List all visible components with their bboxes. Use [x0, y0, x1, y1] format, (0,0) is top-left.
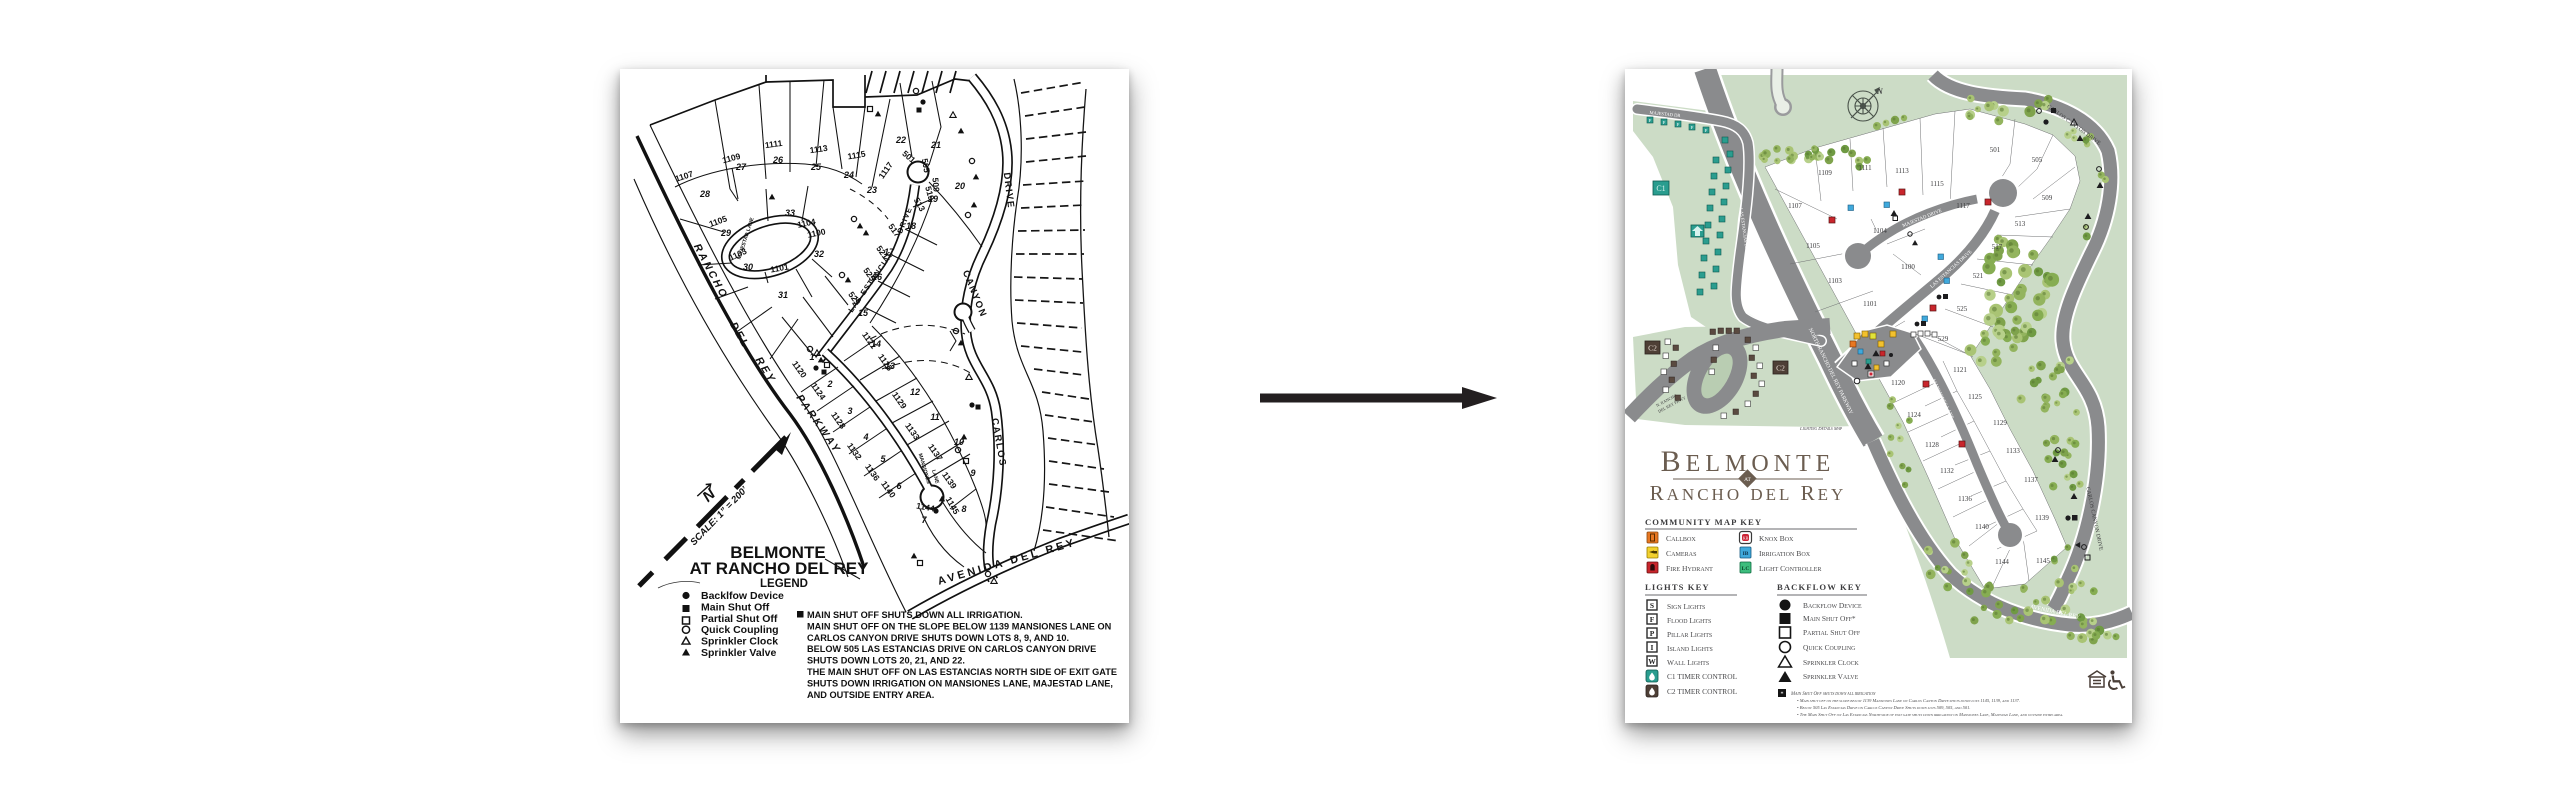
svg-text:BELOW 505 LAS ESTANCIAS DRIVE: BELOW 505 LAS ESTANCIAS DRIVE ON CARLOS … — [807, 644, 1096, 654]
svg-text:QUICK COUPLING: QUICK COUPLING — [1803, 643, 1856, 652]
svg-text:BACKFLOW KEY: BACKFLOW KEY — [1777, 582, 1862, 592]
svg-text:C1: C1 — [1656, 184, 1665, 193]
svg-text:CARLOS CANYON DRIVE SHUTS DOWN: CARLOS CANYON DRIVE SHUTS DOWN LOTS 8, 9… — [807, 633, 1069, 643]
svg-text:1133: 1133 — [2006, 447, 2020, 455]
svg-text:IRRIGATION BOX: IRRIGATION BOX — [1759, 549, 1811, 558]
svg-text:1117: 1117 — [1956, 202, 1970, 210]
svg-text:C2 TIMER CONTROL: C2 TIMER CONTROL — [1667, 687, 1738, 696]
svg-text:1113: 1113 — [1895, 167, 1909, 175]
svg-text:AT RANCHO DEL REY: AT RANCHO DEL REY — [690, 559, 869, 578]
svg-text:1144: 1144 — [1995, 558, 2009, 566]
svg-text:COMMUNITY MAP KEY: COMMUNITY MAP KEY — [1645, 517, 1762, 527]
svg-text:BACKFLOW DEVICE: BACKFLOW DEVICE — [1803, 601, 1862, 610]
svg-text:LEGEND: LEGEND — [760, 578, 808, 590]
svg-text:P: P — [1650, 629, 1655, 638]
svg-text:1139: 1139 — [2035, 514, 2049, 522]
svg-text:SIGN LIGHTS: SIGN LIGHTS — [1667, 602, 1705, 611]
svg-text:SPRINKLER VALVE: SPRINKLER VALVE — [1803, 672, 1859, 681]
svg-text:17: 17 — [884, 247, 895, 257]
svg-text:RANCHO DEL REY: RANCHO DEL REY — [1650, 481, 1847, 505]
svg-text:1115: 1115 — [847, 149, 867, 162]
svg-text:1125: 1125 — [1968, 393, 1982, 401]
svg-text:1107: 1107 — [1788, 202, 1802, 210]
svg-text:C1 TIMER CONTROL: C1 TIMER CONTROL — [1667, 672, 1738, 681]
svg-text:KNOX BOX: KNOX BOX — [1759, 534, 1794, 543]
svg-text:33: 33 — [785, 208, 795, 218]
svg-text:18: 18 — [906, 221, 916, 231]
svg-text:SCALE: 1” = 200’: SCALE: 1” = 200’ — [688, 484, 750, 548]
svg-text:MAIN SHUT OFF SHUTS DOWN ALL I: MAIN SHUT OFF SHUTS DOWN ALL IRRIGATION. — [807, 610, 1023, 620]
svg-text:1124: 1124 — [809, 381, 828, 402]
svg-text:20: 20 — [954, 181, 965, 191]
svg-text:22: 22 — [895, 135, 906, 145]
svg-text:LIGHTS KEY: LIGHTS KEY — [1645, 582, 1710, 592]
svg-text:REY: REY — [753, 355, 779, 386]
svg-text:25: 25 — [810, 162, 822, 172]
svg-text:505: 505 — [2032, 156, 2043, 164]
svg-text:513: 513 — [2015, 220, 2026, 228]
svg-text:30: 30 — [743, 262, 753, 272]
svg-text:1128: 1128 — [1925, 441, 1939, 449]
svg-text:1105: 1105 — [708, 213, 729, 229]
svg-text:SPRINKLER CLOCK: SPRINKLER CLOCK — [1803, 658, 1860, 667]
svg-text:1132: 1132 — [845, 441, 864, 462]
svg-text:DEL: DEL — [727, 320, 752, 351]
svg-text:SHUTS DOWN IRRIGATION ON MANS: SHUTS DOWN IRRIGATION ON MANSIONES LANE,… — [807, 678, 1113, 688]
svg-text:CARLOS: CARLOS — [989, 417, 1008, 467]
svg-text:1117: 1117 — [876, 160, 895, 181]
svg-text:29: 29 — [720, 228, 731, 238]
svg-text:1120: 1120 — [790, 359, 809, 380]
svg-text:Main Shut Off: Main Shut Off — [701, 601, 770, 613]
svg-text:1133: 1133 — [903, 421, 922, 442]
svg-text:1145: 1145 — [944, 495, 962, 516]
svg-text:F: F — [1650, 615, 1655, 624]
svg-text:1145: 1145 — [2036, 557, 2050, 565]
svg-text:*: * — [1781, 692, 1784, 698]
svg-text:Sprinkler Clock: Sprinkler Clock — [701, 636, 778, 648]
svg-text:AND OUTSIDE ENTRY AREA.: AND OUTSIDE ENTRY AREA. — [807, 690, 934, 700]
svg-text:1132: 1132 — [1940, 467, 1954, 475]
svg-text:21: 21 — [930, 140, 941, 150]
svg-text:529: 529 — [1938, 335, 1949, 343]
svg-text:LIGHTING DETAILS MAP: LIGHTING DETAILS MAP — [1799, 426, 1843, 431]
svg-text:31: 31 — [778, 290, 788, 300]
svg-text:IB: IB — [1743, 551, 1749, 557]
svg-text:19: 19 — [928, 194, 938, 204]
svg-text:C2: C2 — [1648, 344, 1657, 353]
svg-text:• MAIN SHUT OFF ON THE SLOPE B: • MAIN SHUT OFF ON THE SLOPE BELOW 1139 … — [1797, 698, 2020, 704]
svg-text:1111: 1111 — [1858, 164, 1872, 172]
svg-text:I: I — [1651, 643, 1654, 652]
svg-text:MAIN SHUT OFF SHUTS DOWN ALL I: MAIN SHUT OFF SHUTS DOWN ALL IRRIGATION — [1790, 692, 1876, 697]
svg-text:1144: 1144 — [916, 501, 936, 514]
svg-text:CAMERAS: CAMERAS — [1666, 549, 1697, 558]
svg-text:1: 1 — [809, 352, 814, 362]
svg-text:1129: 1129 — [890, 390, 909, 411]
svg-text:LIGHT CONTROLLER: LIGHT CONTROLLER — [1759, 564, 1822, 573]
svg-text:1105: 1105 — [1806, 242, 1820, 250]
svg-text:Backlfow Device: Backlfow Device — [701, 590, 784, 602]
svg-text:1111: 1111 — [764, 138, 783, 150]
svg-text:509: 509 — [2042, 194, 2053, 202]
svg-text:1140: 1140 — [879, 479, 898, 500]
svg-text:Quick Coupling: Quick Coupling — [701, 624, 779, 636]
svg-text:KB: KB — [1743, 536, 1749, 541]
svg-text:1136: 1136 — [863, 462, 882, 483]
svg-text:1136: 1136 — [1958, 495, 1972, 503]
svg-text:1104: 1104 — [1873, 227, 1887, 235]
svg-text:1137: 1137 — [2024, 476, 2038, 484]
svg-text:1140: 1140 — [1975, 523, 1989, 531]
svg-text:MAIN SHUT OFF*: MAIN SHUT OFF* — [1803, 614, 1856, 623]
svg-text:501: 501 — [1990, 146, 2001, 154]
svg-text:1115: 1115 — [1930, 180, 1944, 188]
svg-text:2: 2 — [826, 379, 832, 389]
svg-text:1101: 1101 — [770, 261, 790, 274]
svg-text:LC: LC — [1742, 566, 1750, 572]
svg-text:1113: 1113 — [809, 143, 828, 155]
svg-text:3: 3 — [847, 406, 852, 416]
svg-text:13: 13 — [885, 361, 895, 371]
svg-text:521: 521 — [1973, 272, 1984, 280]
svg-text:15: 15 — [858, 308, 869, 318]
svg-text:26: 26 — [772, 155, 784, 165]
svg-text:1139: 1139 — [940, 470, 959, 491]
svg-text:Sprinkler Valve: Sprinkler Valve — [701, 647, 776, 659]
svg-text:S: S — [1650, 601, 1654, 610]
svg-text:1100: 1100 — [1901, 263, 1915, 271]
svg-text:525: 525 — [1957, 305, 1968, 313]
svg-text:28: 28 — [699, 189, 710, 199]
svg-text:1120: 1120 — [1891, 379, 1905, 387]
svg-text:1129: 1129 — [1993, 419, 2007, 427]
svg-text:1128: 1128 — [829, 410, 848, 431]
svg-text:1137: 1137 — [926, 442, 945, 463]
svg-text:5: 5 — [880, 454, 886, 464]
svg-text:14: 14 — [871, 339, 881, 349]
svg-text:32: 32 — [814, 249, 824, 259]
svg-text:9: 9 — [970, 468, 975, 478]
svg-text:CALLBOX: CALLBOX — [1666, 534, 1696, 543]
svg-text:SHUTS DOWN LOTS 20, 21, AND 22: SHUTS DOWN LOTS 20, 21, AND 22. — [807, 656, 965, 666]
svg-text:C2: C2 — [1776, 364, 1785, 373]
svg-text:PARTIAL SHUT OFF: PARTIAL SHUT OFF — [1803, 628, 1861, 637]
svg-text:WALL LIGHTS: WALL LIGHTS — [1667, 658, 1709, 667]
svg-text:12: 12 — [910, 387, 920, 397]
svg-text:1124: 1124 — [1907, 411, 1921, 419]
svg-text:1121: 1121 — [1953, 366, 1967, 374]
svg-text:517: 517 — [1992, 243, 2003, 251]
svg-text:• THE MAIN SHUT OFF ON LAS EST: • THE MAIN SHUT OFF ON LAS ESTANCIAS NOR… — [1797, 712, 2063, 718]
svg-text:4: 4 — [862, 432, 868, 442]
svg-text:THE MAIN SHUT OFF ON LAS ESTAN: THE MAIN SHUT OFF ON LAS ESTANCIAS NORTH… — [807, 667, 1117, 677]
svg-text:1109: 1109 — [1818, 169, 1832, 177]
svg-text:ISLAND LIGHTS: ISLAND LIGHTS — [1667, 644, 1713, 653]
svg-text:1101: 1101 — [1863, 300, 1877, 308]
svg-text:Partial Shut Off: Partial Shut Off — [701, 613, 778, 625]
svg-text:W: W — [1648, 657, 1656, 666]
svg-text:1103: 1103 — [1828, 277, 1842, 285]
svg-text:MANSIONES LN: MANSIONES LN — [1758, 309, 1793, 320]
svg-text:PILLAR LIGHTS: PILLAR LIGHTS — [1667, 630, 1712, 639]
svg-text:24: 24 — [843, 170, 854, 180]
svg-text:8: 8 — [961, 504, 966, 514]
svg-text:FLOOD LIGHTS: FLOOD LIGHTS — [1667, 616, 1711, 625]
svg-text:FIRE HYDRANT: FIRE HYDRANT — [1666, 564, 1713, 573]
svg-text:27: 27 — [735, 162, 747, 172]
svg-text:11: 11 — [930, 412, 939, 422]
svg-text:23: 23 — [866, 185, 877, 195]
svg-text:MAIN SHUT OFF ON THE SLOPE BEL: MAIN SHUT OFF ON THE SLOPE BELOW 1139 MA… — [807, 621, 1112, 631]
svg-text:1107: 1107 — [674, 168, 695, 183]
svg-text:16: 16 — [872, 272, 883, 282]
svg-text:• BELOW 505 LAS ESTANCIAS DRIV: • BELOW 505 LAS ESTANCIAS DRIVE ON CARLO… — [1797, 705, 1970, 711]
